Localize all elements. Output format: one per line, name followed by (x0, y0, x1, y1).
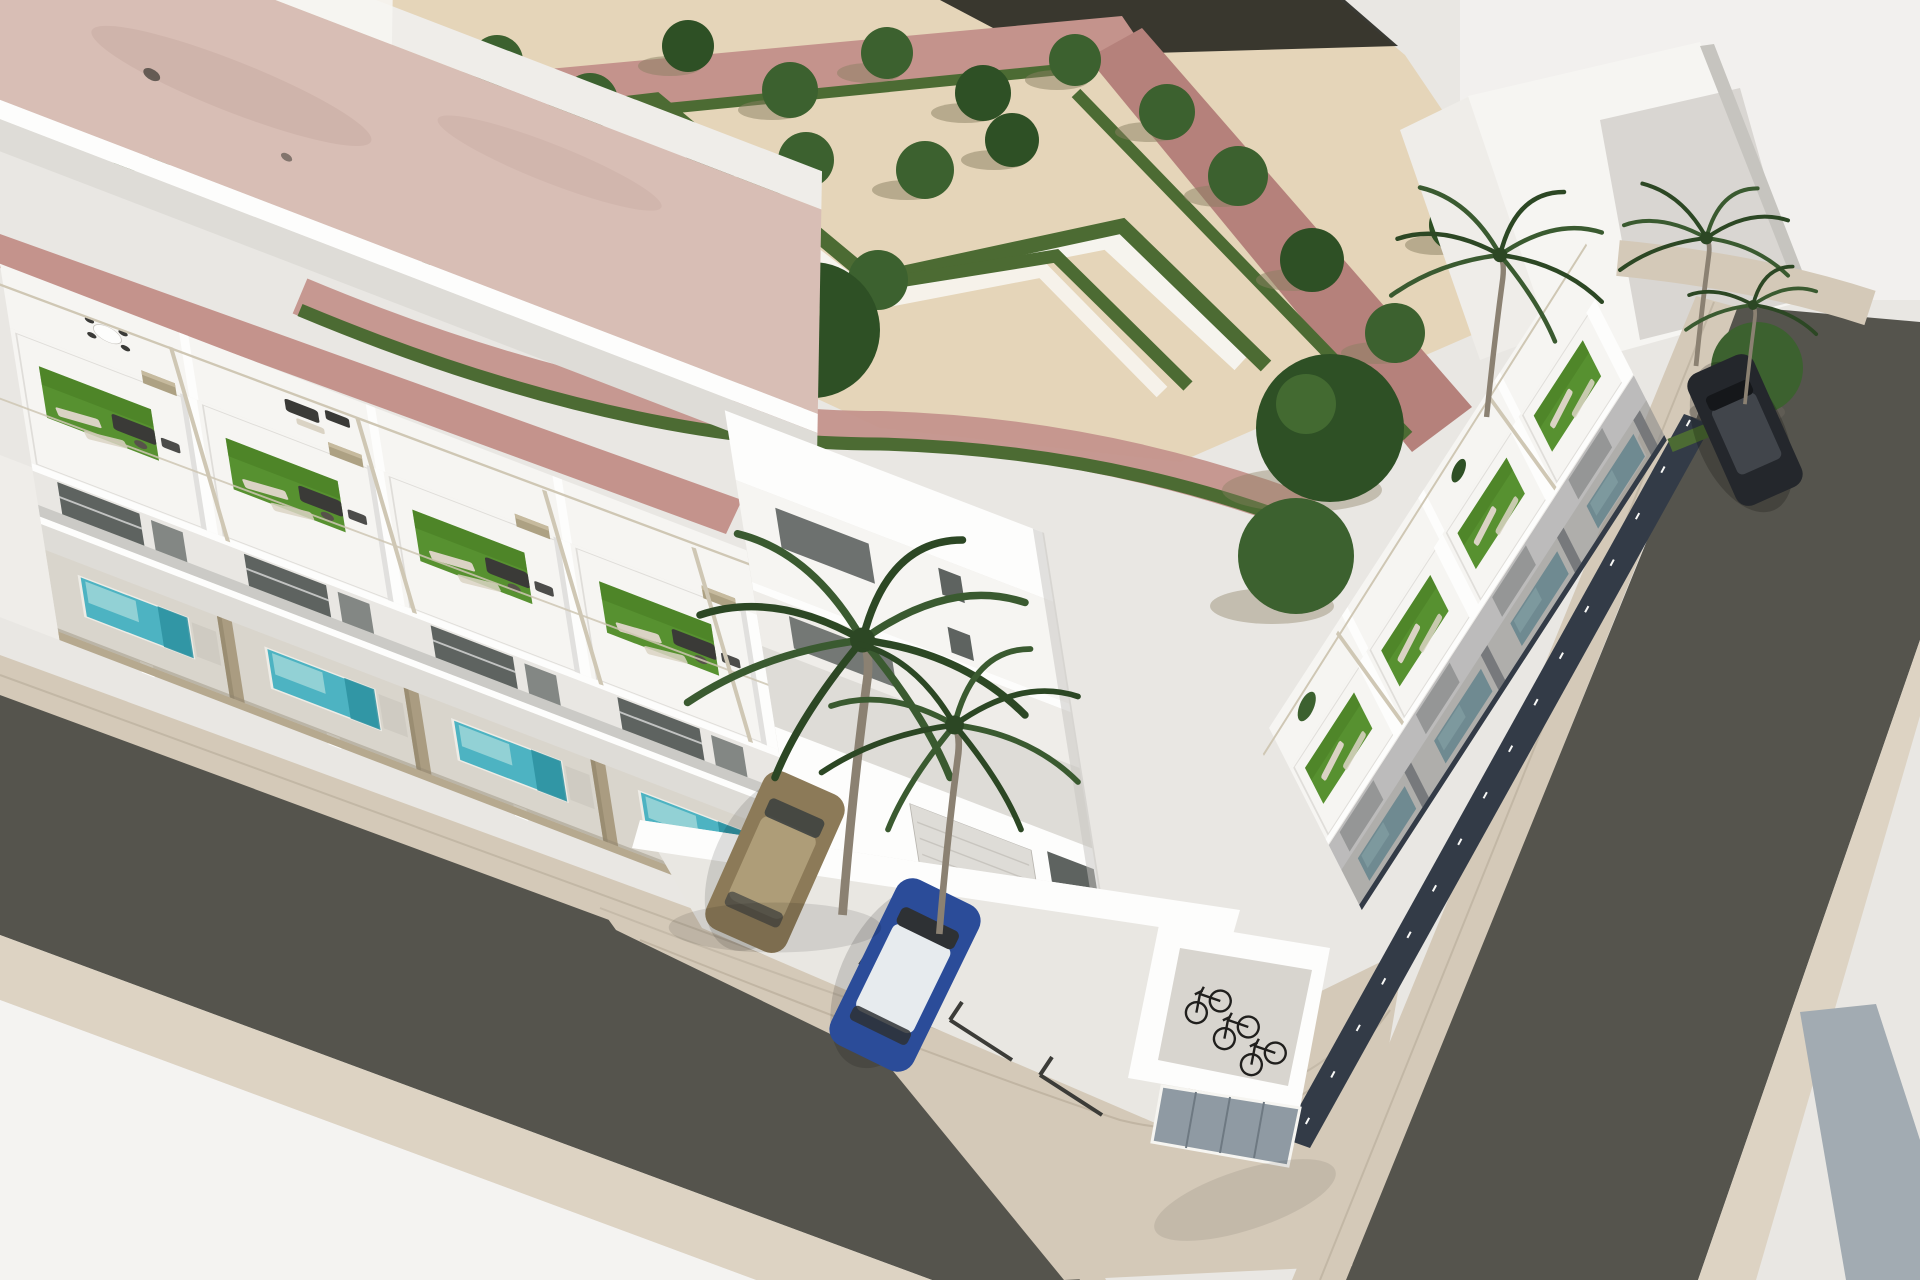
palm-crown (1748, 300, 1758, 310)
tree-canopy (762, 62, 818, 118)
tree-canopy (955, 65, 1011, 121)
tree-canopy (662, 20, 714, 72)
palm-crown (1700, 232, 1713, 245)
tree-canopy (1256, 354, 1404, 502)
palm-shadow (669, 903, 882, 953)
tree-canopy (1238, 498, 1354, 614)
render-stage (0, 0, 1920, 1280)
tree-canopy (861, 27, 913, 79)
palm-crown (945, 716, 964, 735)
tree-canopy (1049, 34, 1101, 86)
tree-canopy (1365, 303, 1425, 363)
tree-canopy (1208, 146, 1268, 206)
tree-canopy (1280, 228, 1344, 292)
tree-canopy (896, 141, 954, 199)
tree-canopy (1139, 84, 1195, 140)
tree-canopy (985, 113, 1039, 167)
palm-crown (1493, 248, 1507, 262)
tree-highlight (1276, 374, 1336, 434)
render-canvas (0, 0, 1920, 1280)
